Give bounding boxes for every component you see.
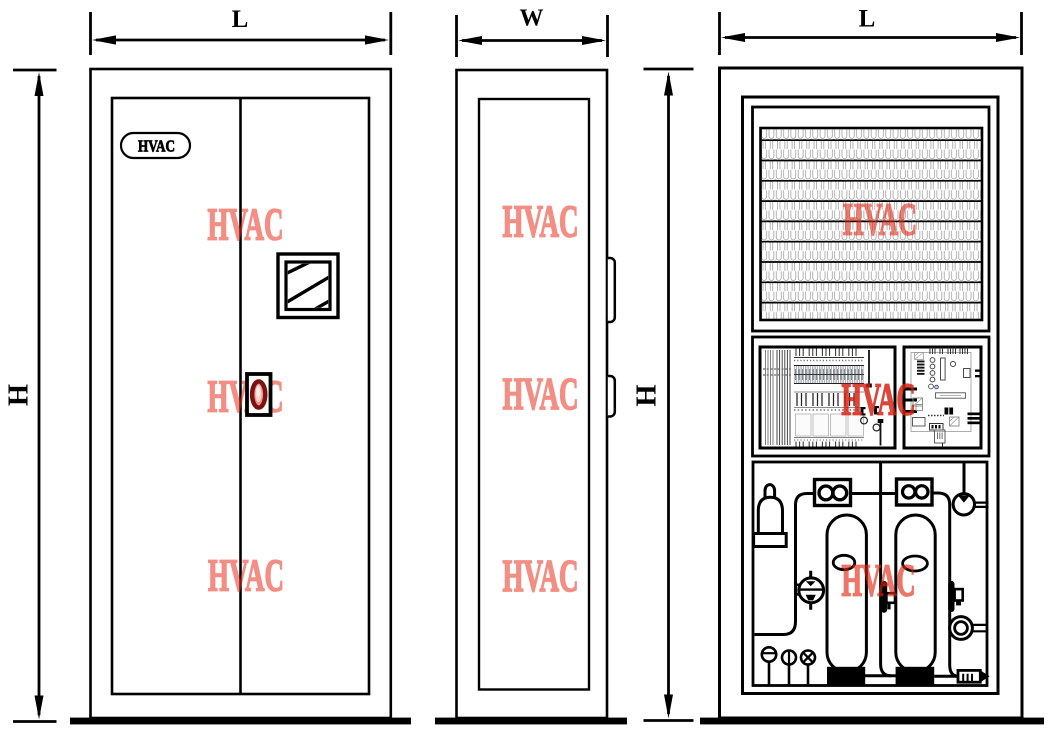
- svg-text:HVAC: HVAC: [503, 550, 579, 601]
- svg-text:L: L: [232, 6, 249, 33]
- svg-text:HVAC: HVAC: [208, 199, 284, 250]
- svg-text:HVAC: HVAC: [138, 137, 175, 156]
- svg-text:H: H: [632, 384, 663, 406]
- svg-text:HVAC: HVAC: [842, 555, 916, 606]
- svg-text:HVAC: HVAC: [208, 550, 284, 601]
- svg-text:H: H: [4, 384, 35, 406]
- svg-text:L: L: [859, 6, 876, 33]
- svg-text:HVAC: HVAC: [842, 374, 916, 425]
- svg-text:HVAC: HVAC: [503, 196, 579, 247]
- svg-text:HVAC: HVAC: [503, 368, 579, 419]
- svg-text:HVAC: HVAC: [843, 194, 917, 245]
- svg-text:W: W: [520, 6, 544, 32]
